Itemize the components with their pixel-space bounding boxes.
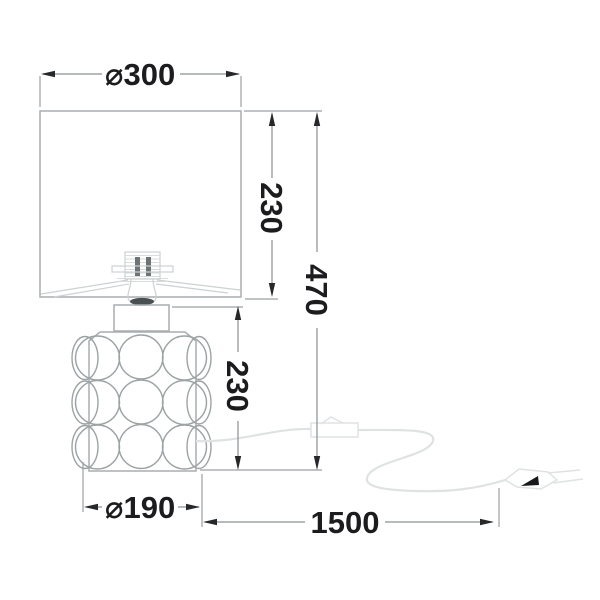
plug-mark bbox=[521, 476, 539, 486]
dim-label-shade-diameter: ⌀300 bbox=[105, 57, 175, 92]
base-outline bbox=[89, 332, 196, 471]
neck-outline bbox=[114, 305, 169, 331]
dim-label-total-height: 470 bbox=[299, 264, 334, 316]
lamp-base bbox=[72, 332, 211, 471]
power-cable bbox=[196, 417, 583, 491]
lamp-neck bbox=[114, 305, 169, 331]
shade-support-right bbox=[156, 280, 240, 293]
cable-from-base bbox=[196, 429, 311, 441]
dim-base-height: 230 bbox=[172, 306, 255, 470]
bulb-collar bbox=[130, 298, 154, 305]
dim-shade-diameter: ⌀300 bbox=[40, 57, 241, 107]
dim-label-base-height: 230 bbox=[220, 360, 255, 412]
drawing-canvas: ⌀300 230 470 230 ⌀190 1500 bbox=[0, 0, 600, 600]
bulb-socket bbox=[112, 252, 173, 282]
cable-loop bbox=[358, 430, 505, 491]
inline-switch bbox=[311, 423, 358, 437]
dim-label-cable-length: 1500 bbox=[311, 505, 380, 540]
dim-total-height: 470 bbox=[200, 112, 334, 470]
light-bulb bbox=[128, 279, 156, 306]
dim-cable-length: 1500 bbox=[203, 488, 499, 540]
dim-label-base-diameter: ⌀190 bbox=[105, 490, 175, 525]
dim-label-shade-height: 230 bbox=[254, 182, 289, 234]
power-plug bbox=[505, 469, 557, 489]
lamp-dimension-drawing: ⌀300 230 470 230 ⌀190 1500 bbox=[0, 0, 600, 600]
base-edge-bubbles bbox=[72, 337, 211, 469]
shade-support-left bbox=[41, 280, 129, 297]
